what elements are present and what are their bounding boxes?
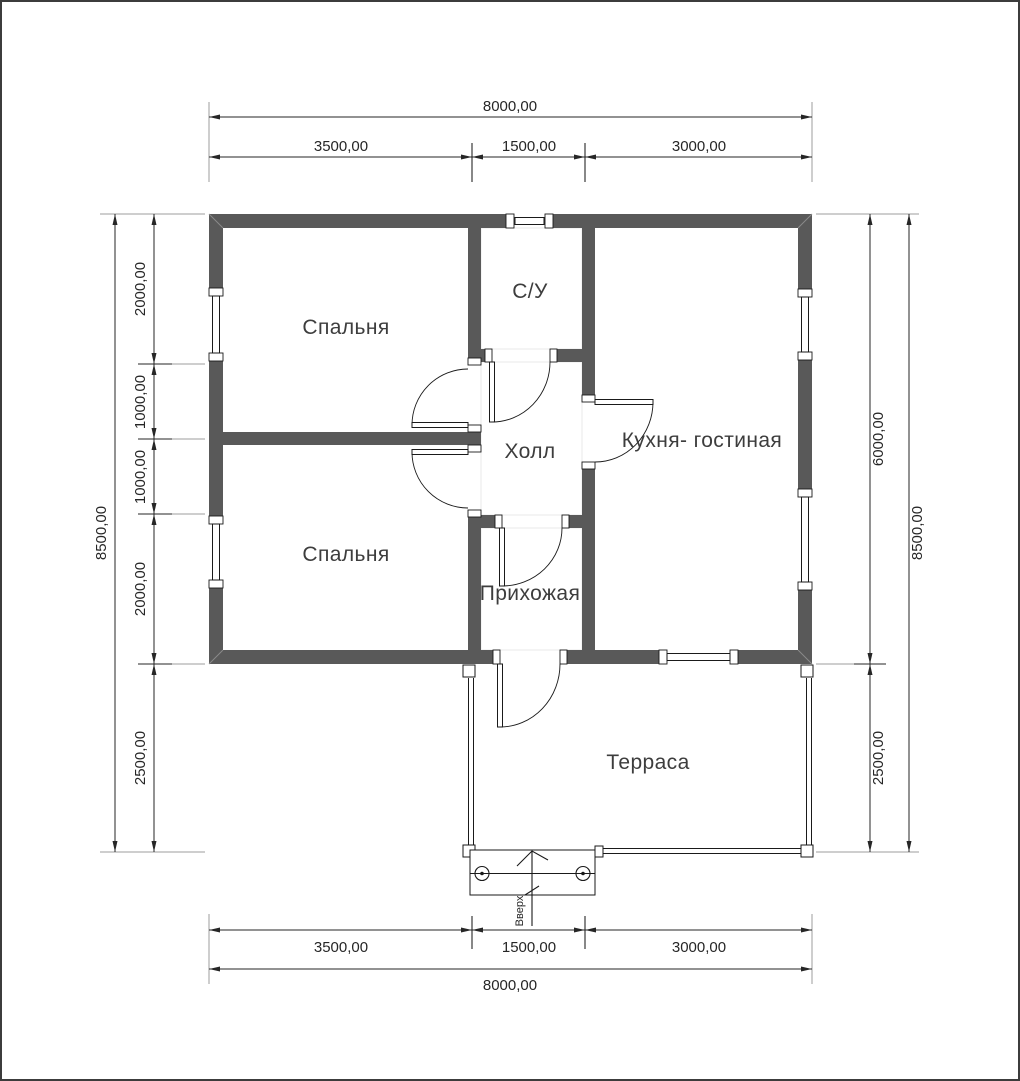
dim-left-seg-4: 2000,00 [132, 562, 149, 616]
dim-bottom-overall: 8000,00 [483, 977, 537, 994]
room-label-bathroom: С/У [512, 280, 548, 303]
dim-top-seg-2: 1500,00 [502, 138, 556, 155]
room-label-hall: Холл [504, 440, 555, 463]
dimension-top: 8000,00 3500,00 1500,00 3000,00 [209, 98, 812, 182]
door-terrace [498, 664, 561, 727]
door-entry [500, 528, 563, 586]
stairs: Вверх [470, 850, 595, 926]
door-bathroom [490, 362, 551, 422]
dim-right-seg-1: 6000,00 [870, 412, 887, 466]
room-label-bedroom-top: Спальня [302, 316, 389, 339]
door-bedroom-bottom [412, 450, 468, 509]
dimension-left: 8500,00 2000,00 1000,00 1000,00 2000,00 … [93, 214, 205, 852]
dim-left-seg-1: 2000,00 [132, 262, 149, 316]
room-label-terrace: Терраса [606, 751, 689, 774]
doors [412, 362, 653, 727]
window-kitchen-right-2 [802, 497, 809, 582]
dim-bottom-seg-2: 1500,00 [502, 939, 556, 956]
dim-top-seg-1: 3500,00 [314, 138, 368, 155]
dim-left-overall: 8500,00 [93, 506, 110, 560]
room-label-entry: Прихожая [480, 582, 581, 605]
stairs-direction-label: Вверх [514, 895, 526, 926]
door-bedroom-top [412, 369, 468, 428]
window-kitchen-right-1 [802, 297, 809, 352]
window-bathroom [515, 218, 544, 225]
dim-left-seg-2: 1000,00 [132, 375, 149, 429]
room-label-bedroom-bottom: Спальня [302, 543, 389, 566]
dim-left-seg-3: 1000,00 [132, 450, 149, 504]
dim-left-seg-5: 2500,00 [132, 731, 149, 785]
window-kitchen-bottom [667, 654, 730, 661]
dim-right-overall: 8500,00 [909, 506, 926, 560]
window-bedroom-top [213, 296, 220, 353]
floor-plan-drawing: Вверх Спальня С/У Холл Кухня- гостиная С… [2, 2, 1020, 1081]
dim-top-seg-3: 3000,00 [672, 138, 726, 155]
dim-top-overall: 8000,00 [483, 98, 537, 115]
dim-right-seg-2: 2500,00 [870, 731, 887, 785]
room-label-kitchen-living: Кухня- гостиная [622, 429, 782, 452]
dimension-bottom: 3500,00 1500,00 3000,00 8000,00 [209, 914, 812, 994]
dimension-right: 6000,00 2500,00 8500,00 [816, 214, 926, 852]
room-labels: Спальня С/У Холл Кухня- гостиная Спальня… [302, 280, 782, 774]
dim-bottom-seg-3: 3000,00 [672, 939, 726, 956]
floor-plan-page: Вверх Спальня С/У Холл Кухня- гостиная С… [0, 0, 1020, 1081]
window-bedroom-bottom [213, 524, 220, 580]
dim-bottom-seg-1: 3500,00 [314, 939, 368, 956]
